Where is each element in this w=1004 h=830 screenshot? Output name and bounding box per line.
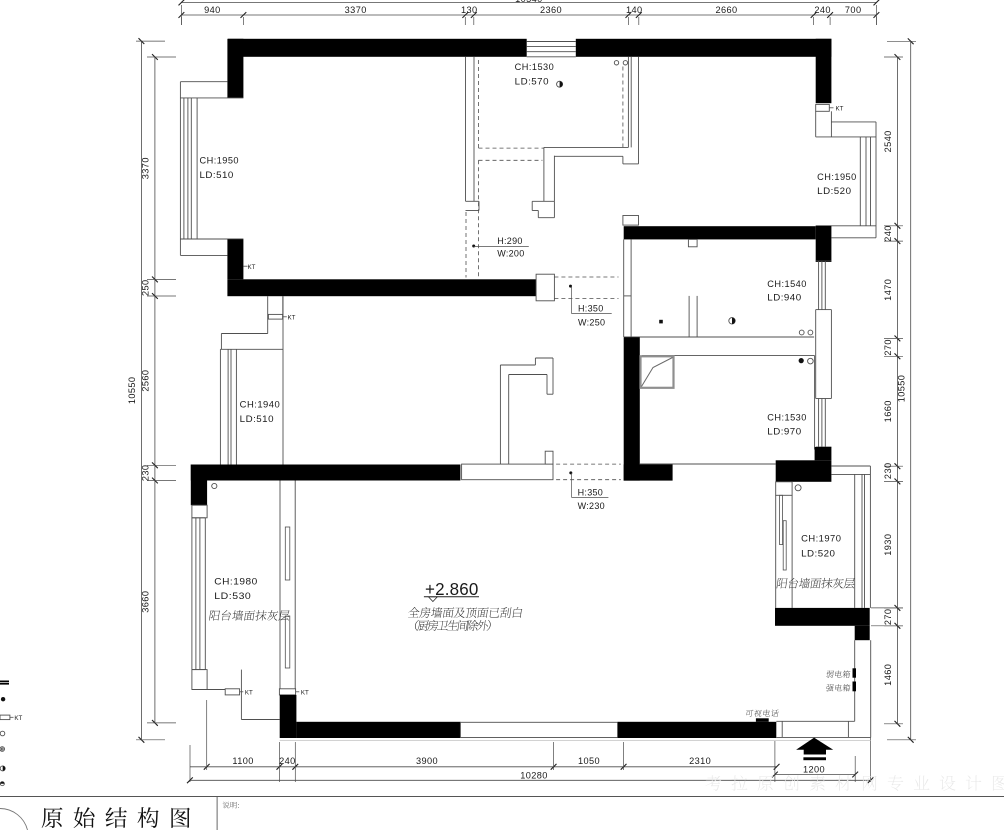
svg-text:10550: 10550 bbox=[127, 377, 137, 405]
svg-text:LD:510: LD:510 bbox=[200, 170, 234, 180]
svg-text:270: 270 bbox=[883, 609, 893, 626]
svg-text:230: 230 bbox=[883, 463, 893, 480]
svg-text:10540: 10540 bbox=[515, 0, 543, 4]
svg-text:W:230: W:230 bbox=[578, 501, 605, 511]
svg-text:LD:510: LD:510 bbox=[240, 414, 274, 424]
svg-text:KT: KT bbox=[301, 690, 309, 697]
svg-text:130: 130 bbox=[461, 5, 478, 15]
svg-text:1100: 1100 bbox=[232, 756, 253, 766]
svg-text:940: 940 bbox=[204, 5, 221, 15]
svg-text:LD:940: LD:940 bbox=[767, 293, 801, 303]
svg-text:3370: 3370 bbox=[141, 157, 151, 179]
svg-text:3660: 3660 bbox=[141, 591, 151, 613]
svg-text:2540: 2540 bbox=[883, 130, 893, 152]
svg-text:CH:1940: CH:1940 bbox=[240, 400, 281, 410]
svg-text:CH:1980: CH:1980 bbox=[214, 577, 257, 587]
svg-text:CH:1530: CH:1530 bbox=[767, 413, 807, 423]
svg-text:230: 230 bbox=[141, 465, 151, 482]
svg-text:H:290: H:290 bbox=[497, 236, 523, 246]
svg-text:H:350: H:350 bbox=[578, 488, 604, 498]
svg-text:1930: 1930 bbox=[883, 534, 893, 556]
svg-text:LD:520: LD:520 bbox=[801, 548, 835, 558]
svg-text:240: 240 bbox=[279, 756, 296, 766]
svg-text:CH:1540: CH:1540 bbox=[767, 279, 807, 289]
svg-text:2360: 2360 bbox=[540, 5, 562, 15]
svg-text:KT: KT bbox=[836, 106, 844, 113]
svg-text:700: 700 bbox=[845, 5, 862, 15]
svg-text:1460: 1460 bbox=[883, 664, 893, 686]
svg-text:KT: KT bbox=[248, 264, 256, 271]
svg-text:2310: 2310 bbox=[689, 756, 711, 766]
svg-text:3370: 3370 bbox=[345, 5, 367, 15]
svg-text:1470: 1470 bbox=[883, 279, 893, 301]
svg-text:270: 270 bbox=[883, 339, 893, 356]
svg-text:CH:1950: CH:1950 bbox=[817, 172, 857, 182]
svg-text:LD:530: LD:530 bbox=[214, 591, 251, 601]
svg-text:CH:1950: CH:1950 bbox=[200, 156, 240, 166]
svg-text:KT: KT bbox=[288, 314, 296, 321]
svg-text:KT: KT bbox=[14, 715, 22, 722]
svg-text:1660: 1660 bbox=[883, 400, 893, 422]
svg-text:1200: 1200 bbox=[803, 764, 825, 774]
svg-text:1050: 1050 bbox=[578, 756, 600, 766]
svg-text:10280: 10280 bbox=[520, 771, 548, 781]
svg-text:CH:1530: CH:1530 bbox=[515, 62, 555, 72]
svg-text:3900: 3900 bbox=[416, 756, 438, 766]
svg-text:LD:570: LD:570 bbox=[515, 76, 549, 86]
svg-text:140: 140 bbox=[626, 5, 643, 15]
svg-text:W:250: W:250 bbox=[578, 318, 605, 328]
svg-text:H:350: H:350 bbox=[578, 303, 604, 313]
svg-text:LD:970: LD:970 bbox=[767, 426, 801, 436]
svg-text:+2.860: +2.860 bbox=[425, 579, 479, 599]
svg-text:240: 240 bbox=[883, 225, 893, 242]
svg-text:CH:1970: CH:1970 bbox=[801, 533, 841, 543]
svg-text:KT: KT bbox=[245, 690, 253, 697]
svg-text:W:200: W:200 bbox=[497, 249, 524, 259]
svg-text:2560: 2560 bbox=[141, 370, 151, 392]
svg-text:250: 250 bbox=[141, 279, 151, 296]
svg-text:LD:520: LD:520 bbox=[817, 186, 851, 196]
svg-text:2660: 2660 bbox=[715, 5, 737, 15]
svg-text:240: 240 bbox=[814, 5, 831, 15]
